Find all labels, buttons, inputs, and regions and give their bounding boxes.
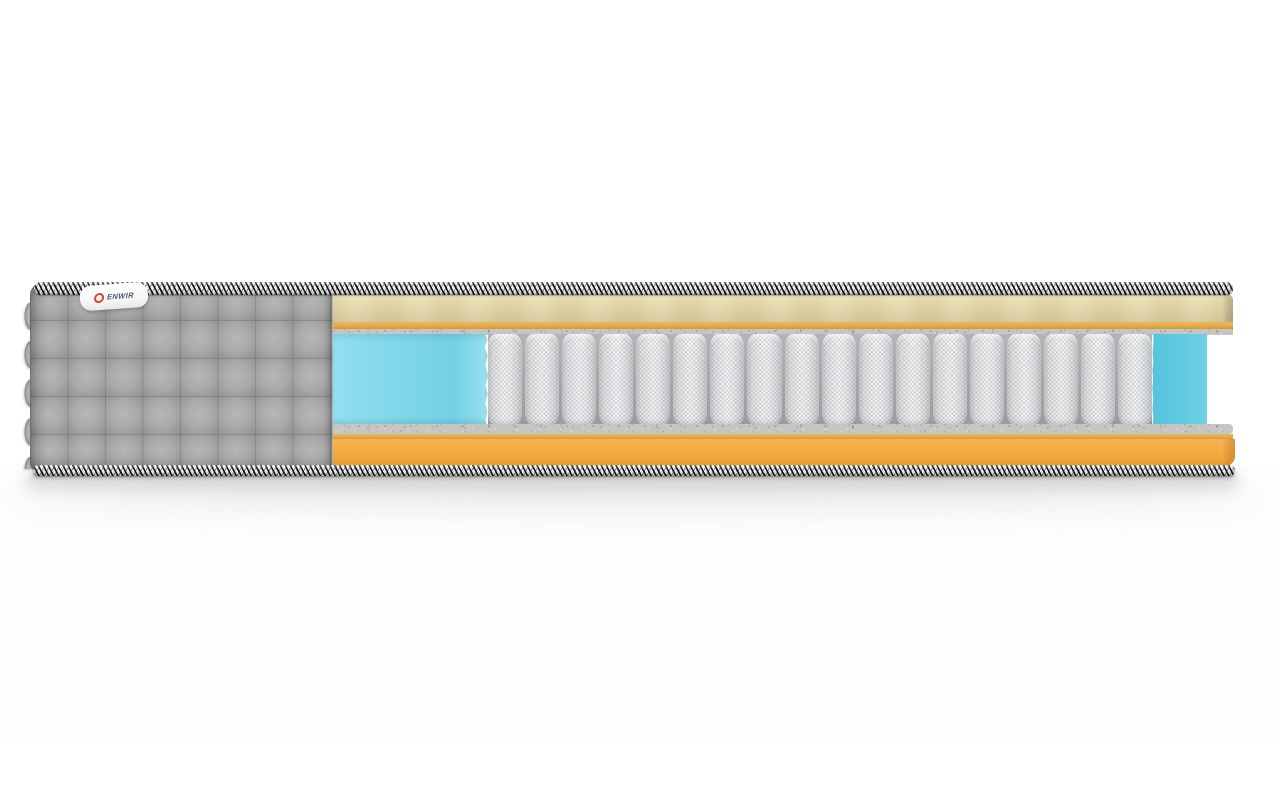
spring-coil — [933, 334, 967, 425]
spring-coil — [970, 334, 1004, 425]
red-ring-icon — [94, 292, 105, 303]
brand-label-text: ENWIR — [107, 291, 135, 302]
brand-label: ENWIR — [79, 282, 149, 312]
spring-coil — [785, 334, 819, 425]
bottom-trim-braid — [33, 465, 1235, 476]
spring-coil — [1081, 334, 1115, 425]
perimeter-foam-right — [1152, 334, 1207, 425]
quilted-top-panel — [328, 294, 1233, 322]
top-trim-braid — [34, 282, 1233, 295]
spring-coil — [1118, 334, 1152, 425]
bottom-felt-pad — [328, 424, 1233, 434]
spring-coil — [525, 334, 559, 425]
spring-coil — [562, 334, 596, 425]
perimeter-foam-left — [331, 334, 488, 425]
spring-coil — [636, 334, 670, 425]
spring-coil — [896, 334, 930, 425]
spring-coil — [710, 334, 744, 425]
spring-coil — [1007, 334, 1041, 425]
quilted-cover — [30, 283, 333, 473]
top-foam-strip — [328, 322, 1233, 329]
spring-coil — [673, 334, 707, 425]
spring-coil — [859, 334, 893, 425]
spring-coil — [599, 334, 633, 425]
spring-coil — [747, 334, 781, 425]
mattress-product-render: ENWIR — [0, 0, 1280, 800]
spring-coil — [1044, 334, 1078, 425]
springs-row — [488, 334, 1152, 425]
base-foam-panel — [328, 439, 1235, 466]
spring-coil — [488, 334, 522, 425]
spring-coil — [822, 334, 856, 425]
